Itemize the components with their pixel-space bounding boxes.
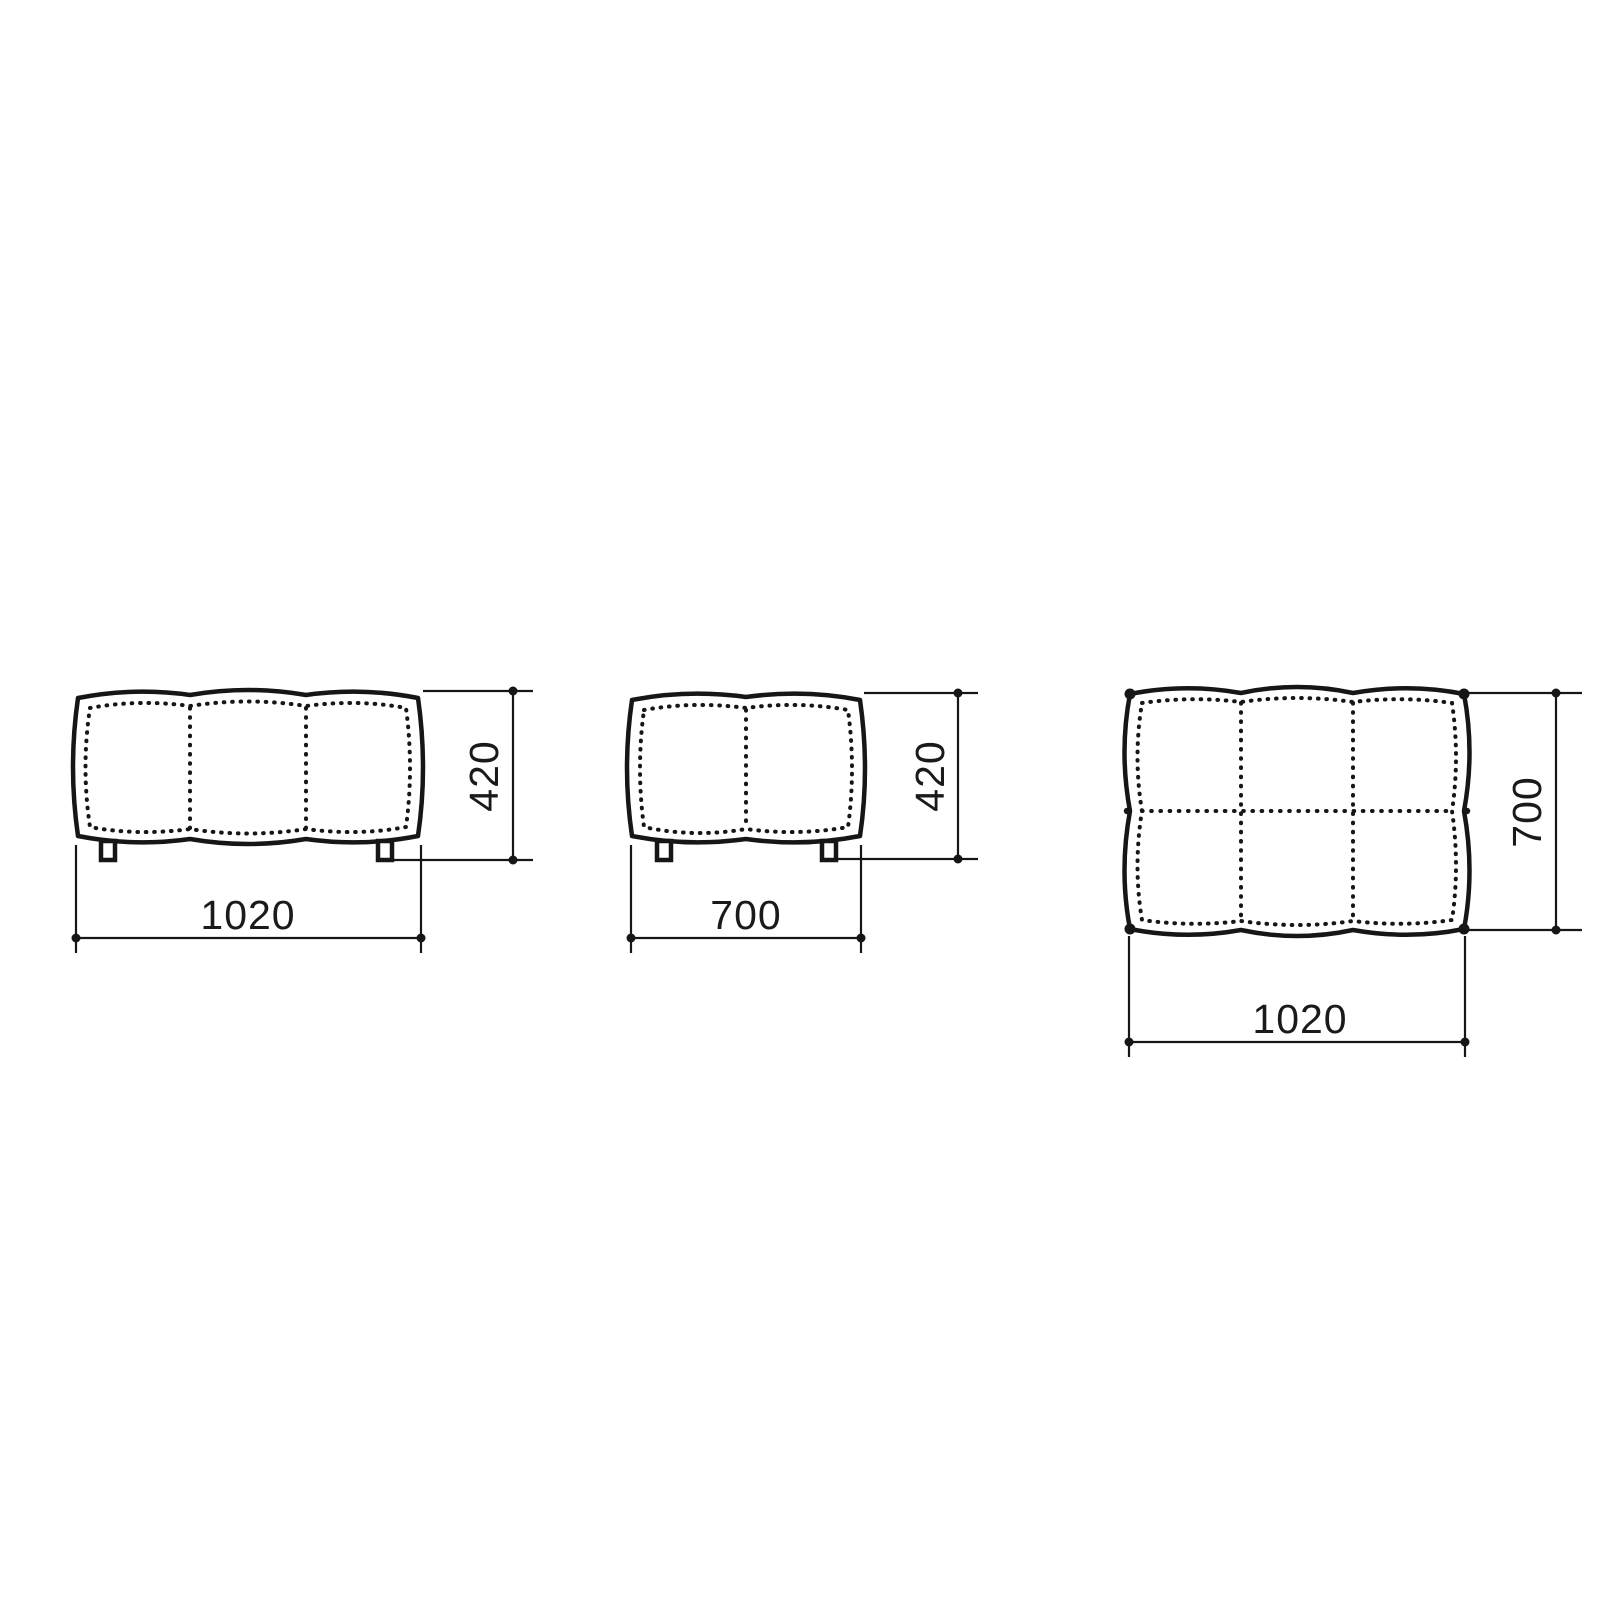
ottoman-dimension-drawing: 1020 420 xyxy=(0,0,1600,1600)
corner-button-dot xyxy=(1459,924,1470,935)
front-ottoman-outline xyxy=(73,690,423,844)
front-width-dimension: 1020 xyxy=(72,845,426,953)
top-depth-dimension: 700 xyxy=(1468,689,1582,935)
dimension-endpoint-dot xyxy=(509,856,518,865)
top-width-label: 1020 xyxy=(1252,996,1347,1042)
side-right-leg xyxy=(822,841,836,860)
front-elevation-view: 1020 420 xyxy=(72,687,534,954)
technical-drawing-page: 1020 420 xyxy=(0,0,1600,1600)
side-width-label: 700 xyxy=(710,892,781,938)
dimension-endpoint-dot xyxy=(417,934,426,943)
front-height-label: 420 xyxy=(461,740,507,811)
front-left-leg xyxy=(101,841,115,860)
side-elevation-view: 700 420 xyxy=(627,689,979,954)
front-width-label: 1020 xyxy=(200,892,295,938)
side-left-leg xyxy=(657,841,671,860)
dimension-endpoint-dot xyxy=(1552,689,1561,698)
dimension-endpoint-dot xyxy=(954,855,963,864)
dimension-endpoint-dot xyxy=(509,687,518,696)
dimension-endpoint-dot xyxy=(1461,1038,1470,1047)
dimension-endpoint-dot xyxy=(857,934,866,943)
top-width-dimension: 1020 xyxy=(1125,936,1470,1057)
top-depth-label: 700 xyxy=(1504,776,1550,847)
corner-button-dot xyxy=(1125,689,1136,700)
dimension-endpoint-dot xyxy=(72,934,81,943)
dimension-endpoint-dot xyxy=(1552,926,1561,935)
dimension-endpoint-dot xyxy=(1125,1038,1134,1047)
dimension-endpoint-dot xyxy=(627,934,636,943)
top-plan-view: 700 1020 xyxy=(1124,687,1582,1057)
side-height-label: 420 xyxy=(907,740,953,811)
edge-waist-dot xyxy=(1464,808,1470,814)
corner-button-dot xyxy=(1459,689,1470,700)
dimension-endpoint-dot xyxy=(954,689,963,698)
corner-button-dot xyxy=(1125,924,1136,935)
edge-waist-dot xyxy=(1124,808,1130,814)
front-right-leg xyxy=(378,841,392,860)
